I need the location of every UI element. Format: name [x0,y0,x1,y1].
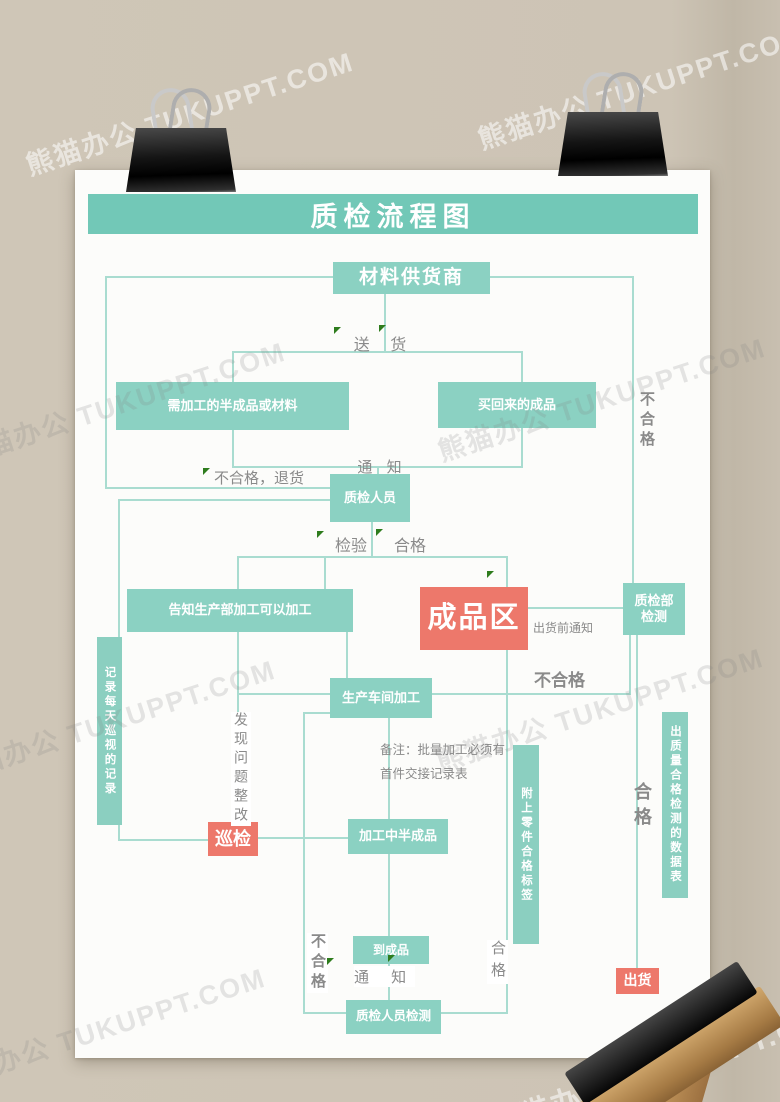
label-fail-left-bottom: 不合格 [307,933,328,993]
flow-line [303,712,330,714]
label-fail-mid: 不合格 [534,666,585,691]
flow-node-final-inspection: 质检人员检测 [346,1000,441,1034]
label-pass-bottom-mid: 合格 [487,940,508,984]
flow-line [346,631,348,680]
bar-qualified-tag: 附上零件合格标签 [513,745,539,944]
label-notify-bottom: 通 知 [354,966,415,987]
flow-line [490,276,632,278]
label-fail-right-top: 不合格 [636,391,657,451]
label-issue-fix: 发现问题整改 [231,712,251,826]
label-note-line1: 备注：批量加工必须有 [380,739,505,758]
clip-body [126,128,236,192]
arrow-mark-icon [487,571,494,578]
flow-line [303,1012,346,1014]
label-note-line2: 首件交接记录表 [380,763,468,782]
flow-line [105,276,107,489]
clip-body [558,112,668,176]
label-pass-right: 合格 [629,782,655,832]
flow-line [105,276,335,278]
arrow-mark-icon [327,958,334,965]
label-inspect: 检验 [335,532,367,556]
arrow-mark-icon [379,325,386,332]
flow-line [232,428,234,468]
flow-line [521,428,523,468]
bar-daily-patrol-record: 记录每天巡视的记录 [97,637,122,825]
poster-mockup: 熊猫办公 TUKUPPT.COM 熊猫办公 TUKUPPT.COM 熊猫办公 T… [0,0,780,1102]
label-pass: 合格 [394,532,426,556]
flow-node-qc-department: 质检部检测 [623,583,685,635]
flow-node-semi-products: 需加工的半成品或材料 [116,382,349,430]
label-pre-ship-notice: 出货前通知 [533,619,593,636]
flow-line [440,1012,506,1014]
flow-line [303,712,305,1014]
flow-line [629,634,631,695]
flow-line [521,351,523,384]
flow-line [371,522,373,558]
flow-line [388,853,390,938]
flow-node-finished-area: 成品区 [420,587,528,650]
binder-clip-icon [558,72,668,178]
flow-line [237,693,629,695]
arrow-mark-icon [203,468,210,475]
arrow-mark-icon [317,531,324,538]
flow-node-patrol: 巡检 [208,822,258,856]
flow-node-supplier: 材料供货商 [333,262,490,294]
arrow-mark-icon [376,529,383,536]
flow-node-workshop: 生产车间加工 [330,678,432,718]
rubber-stamp-icon [536,928,780,1102]
flow-node-inform-production: 告知生产部加工可以加工 [127,589,353,632]
arrow-mark-icon [388,955,395,962]
bar-qc-data-sheet: 出质量合格检测的数据表 [662,712,688,898]
flow-line [232,351,234,384]
label-notify-top: 通 知 [350,456,414,477]
flow-node-bought-products: 买回来的成品 [438,382,596,428]
flow-line [528,607,623,609]
flow-line [506,556,508,589]
page-title-text: 质检流程图 [311,195,476,234]
flow-line [118,499,332,501]
label-deliver: 送 货 [346,331,422,355]
binder-clip-icon [126,88,236,194]
flow-line [118,839,208,841]
flow-line [324,556,326,591]
flow-node-inspector: 质检人员 [330,474,410,522]
flow-line [632,276,634,585]
page-title: 质检流程图 [88,194,698,234]
label-reject-return: 不合格，退货 [214,467,304,488]
arrow-mark-icon [334,327,341,334]
flow-node-mid-product: 加工中半成品 [348,819,448,854]
